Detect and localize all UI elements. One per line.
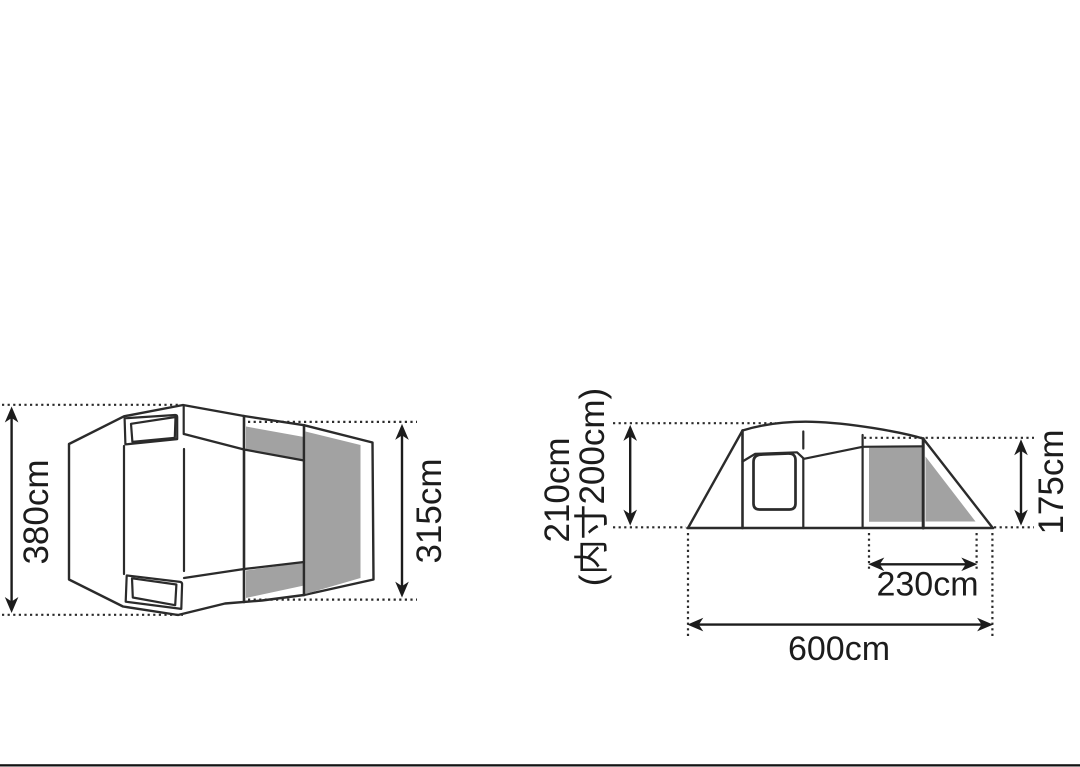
svg-text:380cm: 380cm — [17, 459, 56, 564]
svg-text:(内寸200cm): (内寸200cm) — [573, 388, 612, 586]
svg-text:210cm: 210cm — [538, 437, 577, 542]
svg-text:315cm: 315cm — [410, 458, 449, 563]
svg-text:175cm: 175cm — [1032, 429, 1071, 534]
svg-text:600cm: 600cm — [788, 630, 890, 668]
svg-text:230cm: 230cm — [876, 566, 978, 604]
